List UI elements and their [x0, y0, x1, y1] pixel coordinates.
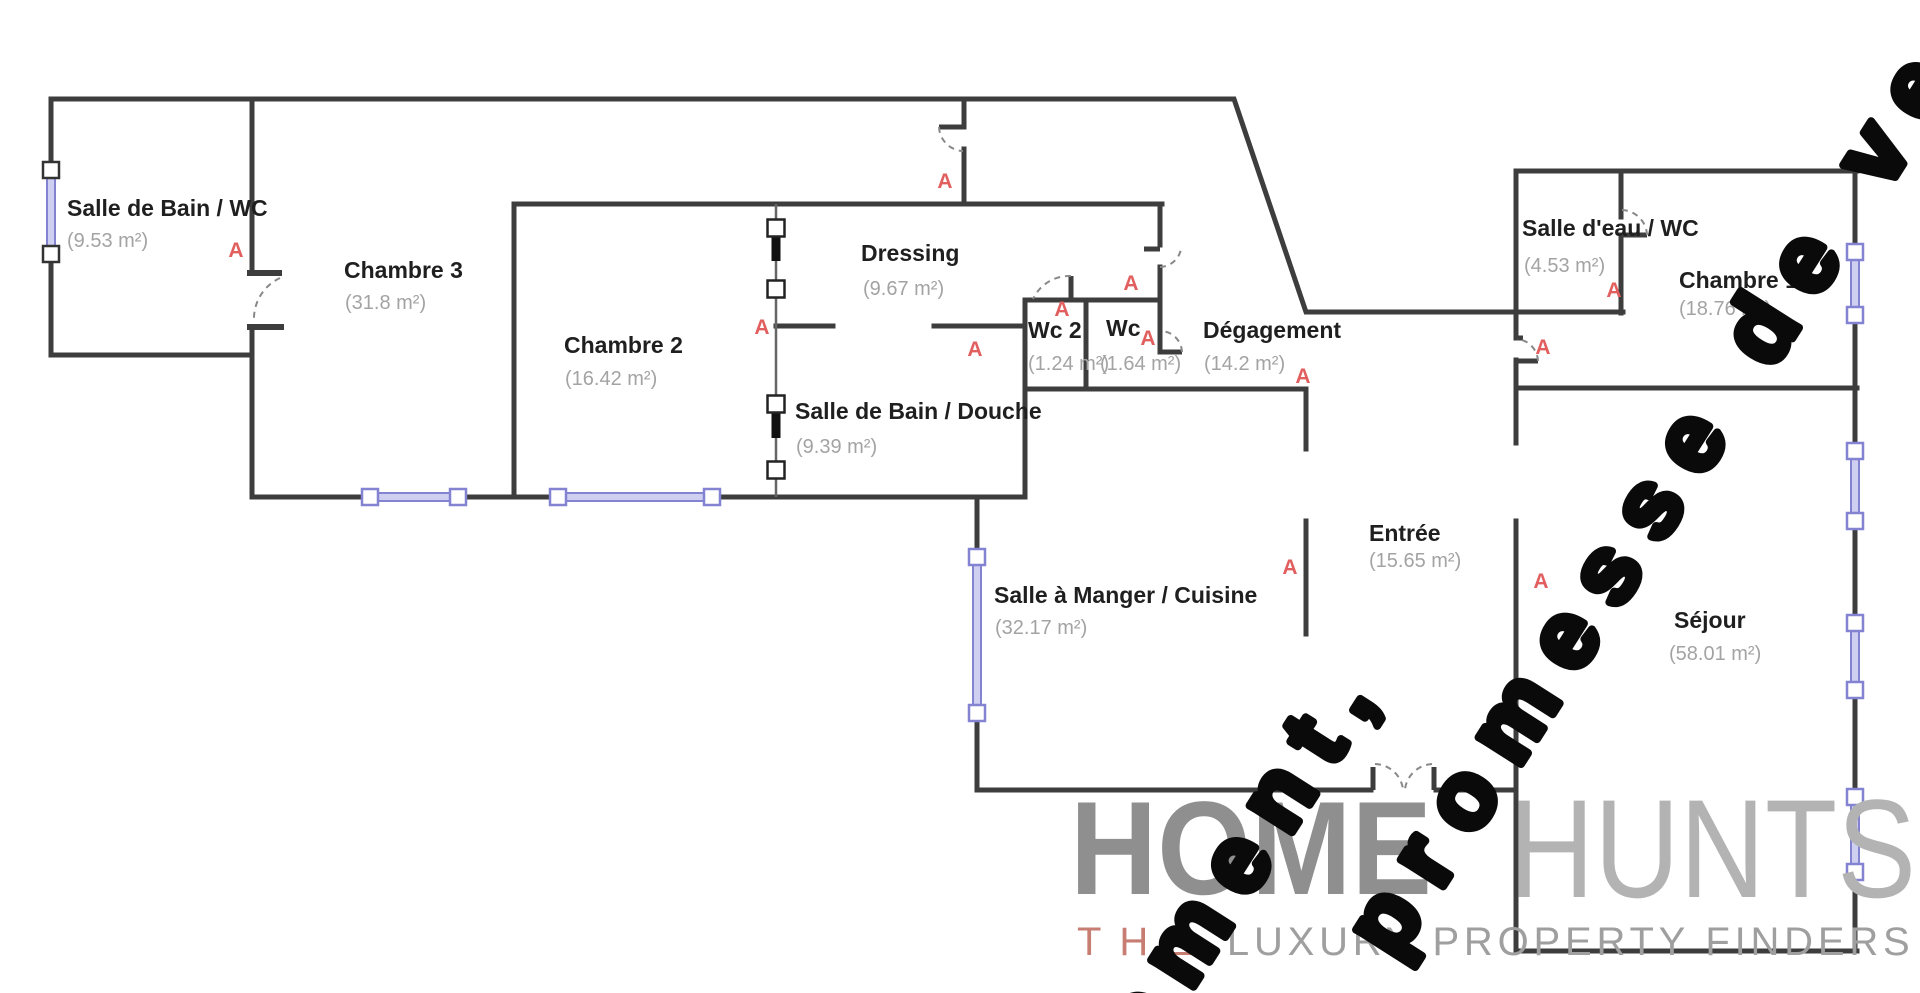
svg-text:Dégagement: Dégagement: [1203, 317, 1341, 343]
svg-text:A: A: [1535, 336, 1550, 359]
svg-text:(1.64 m²): (1.64 m²): [1100, 353, 1181, 375]
svg-text:Salle à Manger / Cuisine: Salle à Manger / Cuisine: [994, 582, 1257, 608]
svg-text:A: A: [1295, 365, 1310, 388]
svg-text:A: A: [937, 170, 952, 193]
svg-text:Séjour: Séjour: [1674, 607, 1746, 633]
svg-text:(58.01 m²): (58.01 m²): [1669, 643, 1761, 665]
svg-text:Chambre 2: Chambre 2: [564, 332, 683, 358]
svg-text:Salle de Bain / WC: Salle de Bain / WC: [67, 195, 268, 221]
svg-text:A: A: [1606, 279, 1621, 302]
svg-text:(9.67 m²): (9.67 m²): [863, 278, 944, 300]
svg-text:A: A: [1282, 556, 1297, 579]
svg-text:A: A: [1054, 298, 1069, 321]
svg-text:A: A: [1140, 327, 1155, 350]
svg-text:(9.53 m²): (9.53 m²): [67, 230, 148, 252]
svg-text:(14.2 m²): (14.2 m²): [1204, 353, 1285, 375]
svg-text:(31.8 m²): (31.8 m²): [345, 292, 426, 314]
svg-text:(9.39 m²): (9.39 m²): [796, 436, 877, 458]
svg-text:(32.17 m²): (32.17 m²): [995, 617, 1087, 639]
svg-text:Entrée: Entrée: [1369, 520, 1441, 546]
svg-text:HUNTS: HUNTS: [1509, 770, 1916, 927]
svg-text:A: A: [228, 239, 243, 262]
svg-text:A: A: [754, 316, 769, 339]
svg-text:Chambre 3: Chambre 3: [344, 257, 463, 283]
svg-text:Salle de Bain / Douche: Salle de Bain / Douche: [795, 398, 1042, 424]
svg-text:(15.65 m²): (15.65 m²): [1369, 550, 1461, 572]
svg-text:(1.24 m²): (1.24 m²): [1028, 353, 1109, 375]
svg-text:(16.42 m²): (16.42 m²): [565, 368, 657, 390]
svg-text:Dressing: Dressing: [861, 240, 959, 266]
svg-text:(4.53 m²): (4.53 m²): [1524, 255, 1605, 277]
svg-text:Wc: Wc: [1106, 315, 1141, 341]
svg-text:Salle d'eau / WC: Salle d'eau / WC: [1522, 215, 1699, 241]
svg-text:A: A: [1123, 272, 1138, 295]
svg-text:A: A: [967, 338, 982, 361]
